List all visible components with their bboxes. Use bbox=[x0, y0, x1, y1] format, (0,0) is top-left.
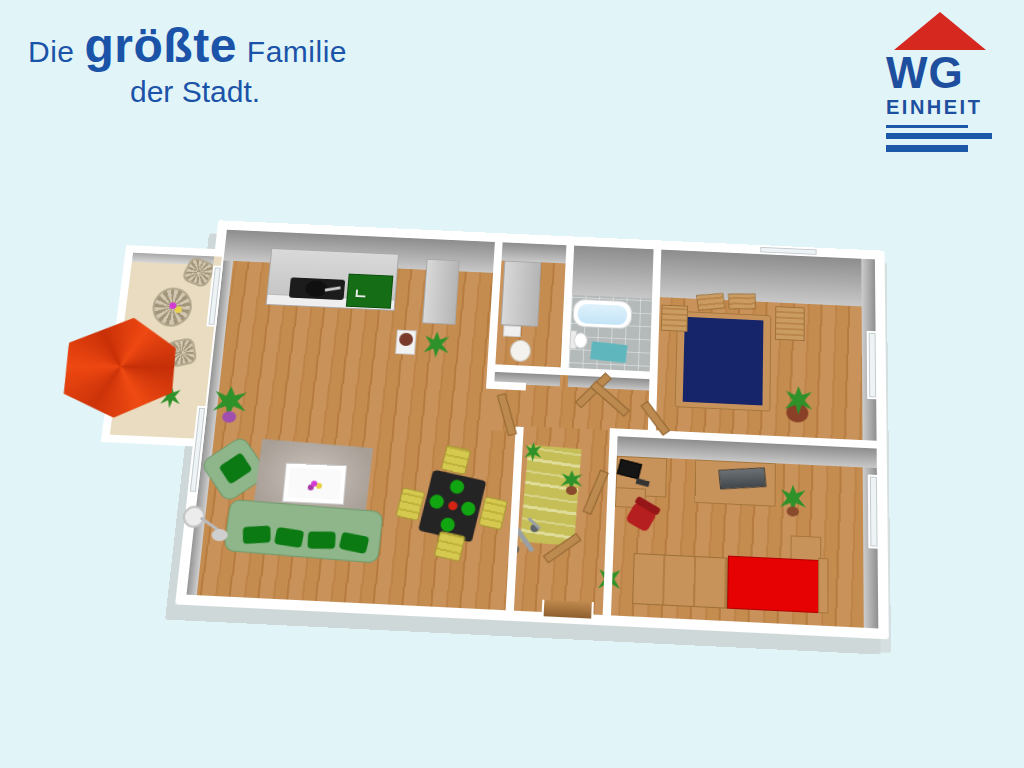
slogan: Die größte Familie der Stadt. bbox=[28, 18, 347, 109]
entrance-threshold bbox=[541, 600, 593, 621]
wall-face bbox=[572, 246, 654, 299]
logo-line-3 bbox=[886, 145, 968, 152]
logo-name: WG bbox=[886, 51, 964, 95]
sofa-cushion bbox=[243, 525, 271, 544]
floor-lamp bbox=[180, 505, 225, 547]
headboard-slat bbox=[696, 293, 725, 311]
bathtub bbox=[572, 299, 632, 330]
armchair-cushion bbox=[219, 452, 253, 484]
floorplan bbox=[175, 220, 889, 639]
flower-decoration bbox=[311, 481, 318, 487]
roof-icon bbox=[894, 12, 986, 50]
plate bbox=[460, 500, 477, 517]
floorplan-floor bbox=[187, 230, 879, 629]
wardrobe bbox=[632, 553, 728, 609]
bedside-bench bbox=[775, 306, 805, 341]
slogan-line2: der Stadt. bbox=[130, 75, 347, 109]
slogan-word-groesste: größte bbox=[85, 18, 237, 73]
window bbox=[867, 331, 878, 400]
red-bed bbox=[727, 556, 822, 614]
table-centerpiece bbox=[447, 500, 458, 511]
sofa-cushion bbox=[274, 527, 304, 548]
green-sink-counter bbox=[346, 274, 394, 309]
toilet bbox=[569, 328, 586, 355]
flower-decoration bbox=[169, 302, 177, 309]
wicker-table bbox=[150, 287, 194, 328]
plant-pot bbox=[787, 506, 799, 517]
sofa-cushion bbox=[339, 532, 370, 554]
slogan-word-familie: Familie bbox=[247, 35, 347, 69]
logo-line-1 bbox=[886, 125, 968, 128]
logo-line-2 bbox=[886, 133, 992, 139]
wall bbox=[608, 436, 617, 470]
sink-mark bbox=[355, 290, 365, 298]
window bbox=[868, 475, 880, 549]
plate bbox=[428, 493, 445, 510]
slogan-word-die: Die bbox=[28, 35, 75, 69]
pantry-ledge bbox=[503, 325, 521, 337]
bath-mat bbox=[590, 341, 627, 363]
tall-cabinet bbox=[422, 259, 460, 325]
laptop bbox=[718, 467, 766, 489]
headboard-slat bbox=[728, 293, 756, 309]
navy-bed-mattress bbox=[683, 317, 764, 406]
red-bed-footboard bbox=[818, 558, 828, 614]
pantry-cabinet bbox=[501, 261, 542, 327]
sofa-cushion bbox=[307, 531, 335, 548]
bathtub-water bbox=[577, 304, 627, 326]
plate bbox=[449, 479, 466, 496]
coffee-table bbox=[283, 464, 346, 504]
slogan-line1: Die größte Familie bbox=[28, 18, 347, 73]
wg-einheit-logo: WG EINHEIT bbox=[886, 12, 1006, 152]
wall-face bbox=[660, 250, 875, 307]
logo-subtitle: EINHEIT bbox=[886, 96, 982, 119]
bedside-bench bbox=[661, 305, 688, 332]
logo-lines bbox=[886, 125, 992, 152]
